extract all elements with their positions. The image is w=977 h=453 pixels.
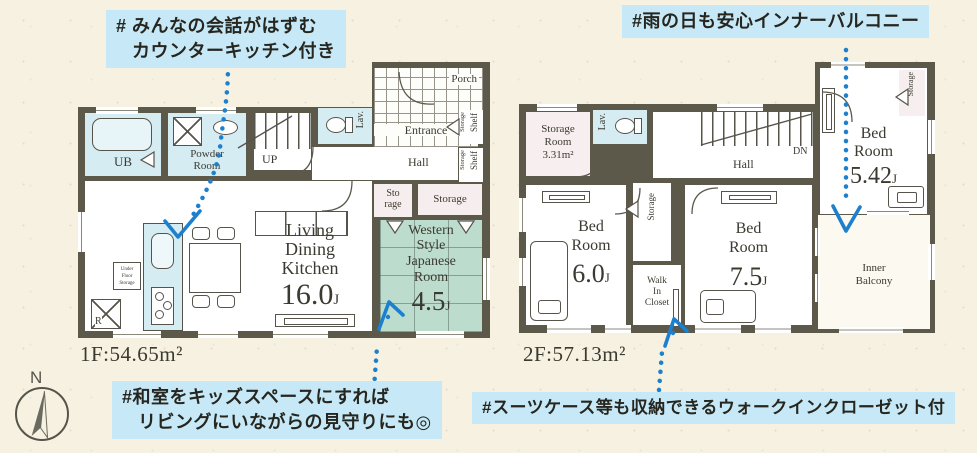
room-lav-2f: Lav. [593, 110, 647, 144]
chair-icon [217, 227, 235, 240]
tv-board-icon [275, 314, 355, 327]
ufs-label-3: Storage [114, 281, 140, 286]
annotation-kids-space: #和室をキッズスペースにすれば リビングにいながらの見守りにも◎ [112, 381, 442, 439]
window-mark [196, 107, 236, 114]
room-ub: UB [85, 113, 161, 176]
window-mark [717, 104, 763, 111]
shelf-icon [542, 191, 590, 203]
toilet-tank-icon [345, 117, 353, 133]
wic-label-1: Walk [633, 277, 681, 287]
room-lav-1f: Lav. [318, 108, 372, 144]
annotation-line: # みんなの会話がはずむ [116, 14, 336, 39]
ldk-label-3: Kitchen [250, 259, 370, 277]
desk-inner-line [826, 94, 832, 130]
balcony-opening [867, 208, 909, 215]
room-inner-balcony: Inner Balcony [818, 215, 930, 329]
stairs-dn-label: DN [793, 147, 807, 157]
kitchen-sink-icon [151, 233, 174, 269]
window-mark [928, 120, 935, 154]
window-mark [547, 325, 591, 333]
annotation-line: #雨の日も安心インナーバルコニー [632, 9, 919, 34]
window-mark [113, 331, 161, 338]
bedroom-542-storage-label: Storage [907, 72, 915, 96]
window-mark [519, 258, 526, 286]
chair-icon [217, 295, 235, 308]
balcony-opening [928, 244, 935, 280]
tv-icon [284, 318, 348, 325]
bedroom-75-label-2: Room [685, 240, 812, 256]
refrigerator-label: R [95, 317, 102, 327]
area-label-1f: 1F:54.65m² [80, 344, 183, 365]
stair-treads-1f [254, 113, 311, 149]
japanese-room-label-4: Room [380, 271, 482, 285]
storage-small-label-2: rage [374, 200, 412, 210]
room-label-powder-1: Powder [168, 149, 246, 160]
ldk-label-2: Dining [250, 240, 370, 258]
toilet-icon [615, 118, 635, 134]
window-mark [96, 107, 138, 114]
bed-icon [700, 290, 756, 323]
balcony-opening [839, 327, 903, 333]
bathtub-icon [92, 118, 152, 151]
shelf-storage-label-2: Storage [460, 150, 467, 170]
japanese-room-label-2: Style [380, 239, 482, 253]
room-storage-2f: Storage [633, 183, 671, 261]
shelf-label-2: Shelf [470, 151, 479, 170]
window-mark [416, 331, 464, 338]
window-mark [483, 258, 490, 300]
window-mark [198, 331, 238, 338]
leader-walk-in-closet [659, 352, 662, 390]
room-hall-1f: Hall [312, 147, 458, 180]
window-mark [273, 331, 328, 338]
under-floor-storage: Under Floor Storage [113, 262, 141, 290]
annotation-counter-kitchen: # みんなの会話がはずむ カウンターキッチン付き [106, 10, 346, 68]
storage-room-label-3: 3.31m² [526, 150, 590, 161]
compass-icon [16, 388, 68, 440]
balcony-label-2: Balcony [818, 276, 930, 287]
window-mark [755, 325, 791, 333]
sink-icon [213, 120, 238, 135]
bedroom-542-label-2: Room [820, 144, 927, 160]
storage-1f-label: Storage [418, 194, 482, 205]
ufs-label-2: Floor [114, 274, 140, 279]
room-label-porch: Porch [449, 74, 479, 85]
bedroom-60-size: 6.0J [556, 261, 626, 287]
nightstand-icon [888, 186, 924, 208]
floorplan-flyer: UB Powder Room UP Lav. Porch Entrance [0, 0, 977, 453]
ldk-size: 16.0J [250, 280, 370, 310]
annotation-line: リビングにいながらの見守りにも◎ [122, 410, 432, 435]
room-storage-small: Sto rage [374, 184, 412, 217]
ldk-label-1: Living [250, 221, 370, 239]
shelf-unit-top: Storage Shelf [459, 110, 483, 144]
storage-small-label-1: Sto [374, 189, 412, 199]
window-mark [605, 325, 631, 333]
stairs-1f: UP [254, 113, 311, 170]
room-storage-1f: Storage [418, 184, 482, 215]
chair-icon [192, 227, 210, 240]
room-label-powder-2: Room [168, 161, 246, 172]
room-japanese: Western Style Japanese Room 4.5J [380, 220, 482, 332]
annotation-line: #スーツケース等も収納できるウォークインクローゼット付 [482, 396, 945, 420]
annotation-line: #和室をキッズスペースにすれば [122, 385, 432, 410]
balcony-opening [815, 228, 820, 256]
room-label-hall-1f: Hall [408, 156, 429, 168]
stove-icon [151, 287, 174, 325]
window-mark [537, 104, 577, 111]
japanese-room-label-3: Japanese [380, 255, 482, 269]
bedroom-542-label-1: Bed [820, 126, 927, 142]
chair-icon [192, 295, 210, 308]
window-mark [695, 325, 741, 333]
room-powder: Powder Room [168, 113, 246, 176]
room-ldk: Under Floor Storage R Living Dining Kitc… [85, 181, 372, 331]
bedroom-60-label-1: Bed [556, 219, 626, 235]
shelf-inner-line [549, 195, 585, 200]
annotation-line: カウンターキッチン付き [116, 39, 336, 64]
floorplan-1f: UB Powder Room UP Lav. Porch Entrance [78, 62, 490, 338]
stairs-up-label: UP [262, 153, 277, 165]
ufs-label-1: Under [114, 267, 140, 272]
toilet-icon [326, 117, 346, 133]
annotation-walk-in-closet: #スーツケース等も収納できるウォークインクローゼット付 [472, 392, 955, 424]
burner-icon [163, 301, 172, 310]
bedroom-542-size: 5.42J [820, 164, 927, 188]
storage-room-label-2: Room [526, 137, 590, 148]
nightstand-inner [897, 192, 917, 203]
table-inner-line [729, 195, 771, 200]
bedroom-542-storage: Storage [899, 70, 925, 116]
stair-treads-2f [701, 112, 813, 146]
room-storage-room-2f: Storage Room 3.31m² [526, 112, 590, 176]
toilet-tank-icon [634, 118, 642, 134]
room-bedroom-75: Bed Room 7.5J [685, 185, 812, 325]
room-label-lav-1f: Lav. [356, 111, 366, 128]
compass-needle-dark [32, 390, 45, 437]
burner-icon [155, 310, 164, 319]
shelf-label-1: Shelf [470, 113, 479, 132]
balcony-opening [815, 274, 820, 302]
room-porch: Porch [374, 68, 483, 114]
storage-room-label-1: Storage [526, 124, 590, 135]
bedroom-75-label-1: Bed [685, 221, 812, 237]
japanese-room-label-1: Western [380, 224, 482, 238]
floorplan-2f: Storage Room 3.31m² Lav. Hall DN Storage… [519, 62, 935, 333]
room-hall-2f: Hall DN [653, 112, 813, 178]
wic-partition [673, 289, 679, 327]
pillow-icon [538, 300, 561, 314]
burner-icon [155, 292, 164, 301]
area-label-2f: 2F:57.13m² [523, 344, 626, 365]
window-mark [78, 212, 85, 252]
table-icon [721, 191, 777, 204]
room-walk-in-closet: Walk In Closet [633, 265, 681, 325]
storage-2f-label: Storage [647, 193, 656, 221]
bedroom-75-size: 7.5J [685, 264, 812, 290]
window-mark [519, 198, 526, 232]
annotation-inner-balcony: #雨の日も安心インナーバルコニー [622, 5, 929, 38]
washer-icon [173, 117, 202, 146]
balcony-label-1: Inner [818, 263, 930, 274]
bedroom-60-label-2: Room [556, 238, 626, 254]
compass-needle-light [40, 391, 53, 438]
window-mark [831, 62, 865, 68]
room-label-ub: UB [85, 155, 161, 168]
shelf-unit-bottom: Storage Shelf [459, 148, 483, 182]
japanese-room-size: 4.5J [380, 288, 482, 315]
refrigerator-icon: R [91, 299, 121, 329]
room-label-lav-2f: Lav. [598, 113, 608, 130]
room-bedroom-60: Bed Room 6.0J [526, 185, 626, 325]
compass-north-label: N [30, 368, 42, 388]
dining-table [189, 243, 241, 293]
kitchen-counter [143, 223, 183, 331]
shelf-storage-label-1: Storage [460, 112, 467, 132]
room-bedroom-542: Storage Bed Room 5.42J [820, 68, 927, 214]
pillow-icon [706, 299, 724, 315]
room-label-hall-2f: Hall [733, 158, 754, 170]
